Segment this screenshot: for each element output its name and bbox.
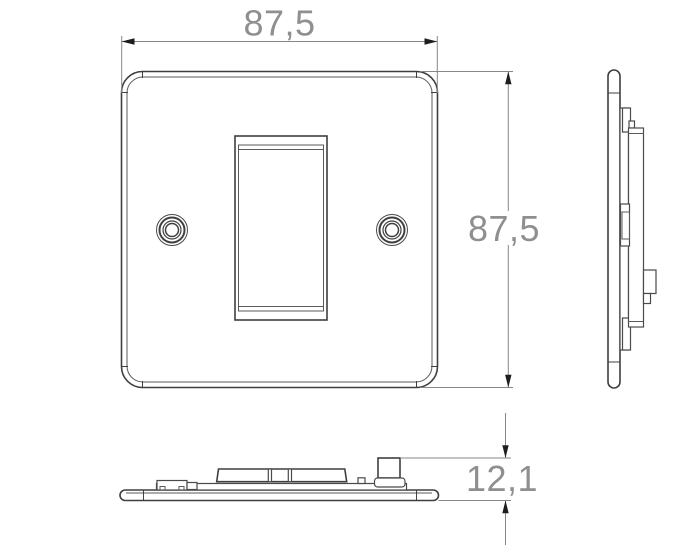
bottom-clip-step (187, 483, 197, 490)
side-view (608, 70, 657, 388)
arrowhead-down (505, 375, 511, 388)
drawing-canvas: 87,5 87,5 (0, 0, 700, 560)
front-view (121, 71, 438, 388)
arrowhead-down (502, 445, 508, 458)
side-terminal-block (644, 270, 657, 294)
bottom-screw-post (378, 458, 400, 478)
depth-dimension-label: 12,1 (466, 458, 538, 499)
side-top-notch (629, 121, 635, 128)
arrowhead-left (122, 38, 135, 44)
bottom-screw-collar (375, 478, 406, 487)
side-back-housing (629, 128, 644, 327)
bottom-plate-profile (120, 490, 439, 501)
technical-drawing: 87,5 87,5 (0, 0, 700, 560)
width-dimension-label: 87,5 (243, 3, 315, 44)
bottom-rocker-edge (217, 469, 347, 482)
arrowhead-up (505, 72, 511, 85)
bottom-yoke-nub (358, 478, 365, 484)
side-plate-profile (608, 70, 620, 388)
height-dimension-label: 87,5 (468, 208, 540, 249)
bottom-left-clip (157, 481, 187, 491)
side-terminal-step (644, 294, 651, 304)
rocker-aperture (235, 136, 327, 320)
depth-dimension: 12,1 (400, 413, 538, 545)
bottom-rocker-divider-left (268, 469, 271, 482)
rocker-switch (235, 136, 327, 320)
bottom-view (120, 458, 439, 501)
bottom-rocker-divider-right (288, 469, 291, 482)
arrowhead-right (425, 38, 438, 44)
arrowhead-up (502, 501, 508, 514)
